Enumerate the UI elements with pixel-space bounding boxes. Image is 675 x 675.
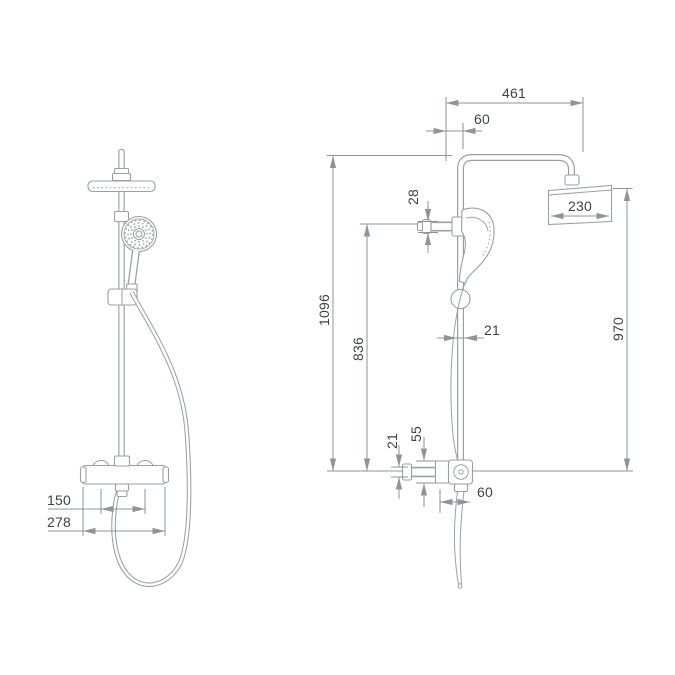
dim-label-21-pipe: 21 (484, 322, 500, 338)
mixer-top-collar (115, 456, 130, 466)
mixer-cap-right (163, 467, 169, 483)
shower-hose-front (114, 292, 190, 585)
dim-label-28: 28 (405, 189, 421, 205)
head-connector (115, 169, 129, 174)
mixer-cap-left (81, 467, 87, 483)
mixer-body (83, 466, 165, 485)
mixer-valve-front (81, 456, 169, 497)
rain-head-front (88, 181, 155, 192)
side-view: 1096 836 461 60 28 21 (316, 85, 633, 588)
hose-tail-side (454, 491, 464, 588)
technical-drawing: 150 278 (0, 0, 675, 675)
dim-label-21-supply: 21 (384, 433, 400, 449)
dim-label-1096: 1096 (316, 294, 332, 326)
head-connector-nut (113, 174, 131, 181)
dim-label-60-bottom: 60 (477, 484, 493, 500)
front-view: 150 278 (47, 152, 189, 585)
dim-label-278: 278 (47, 514, 71, 530)
valve-body (449, 460, 473, 484)
side-view-dimensions: 1096 836 461 60 28 21 (316, 85, 633, 513)
dim-label-836: 836 (350, 337, 366, 361)
dim-label-970: 970 (610, 317, 626, 341)
dim-label-55: 55 (408, 426, 424, 442)
mixer-outlet-nut (117, 491, 127, 497)
dim-label-60-top: 60 (474, 111, 490, 127)
spec-sheet: 150 278 (0, 0, 675, 675)
dim-label-230: 230 (568, 198, 592, 214)
front-view-dimensions: 150 278 (47, 487, 165, 536)
arm-nut (565, 175, 579, 185)
mixer-valve-side (403, 460, 473, 492)
dim-label-461: 461 (502, 85, 526, 101)
hand-shower-front (122, 217, 157, 293)
hand-shower-side (460, 208, 495, 283)
mixer-outlet (116, 484, 129, 491)
valve-outlet-nut (455, 484, 468, 492)
rail-collar (115, 212, 129, 222)
dim-label-150: 150 (47, 492, 71, 508)
